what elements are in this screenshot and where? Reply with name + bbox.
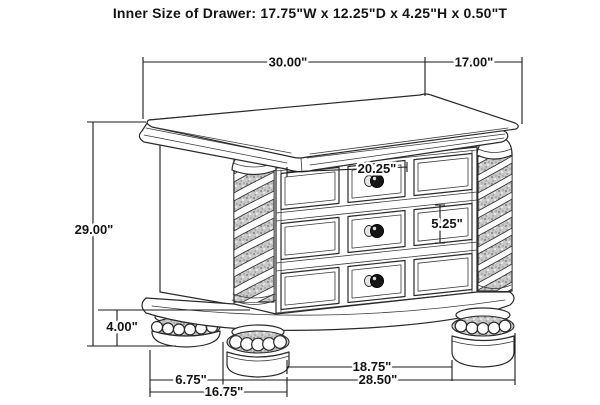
label-left-feet-span: 16.75" — [205, 384, 244, 399]
label-overall-depth: 17.00" — [455, 55, 494, 70]
label-drawer-front-width: 20.25" — [358, 161, 397, 176]
label-foot-width: 6.75" — [175, 372, 206, 387]
right-spiral-column — [477, 137, 512, 308]
drawer-knob-1 — [365, 175, 384, 188]
label-overall-width: 30.00" — [269, 55, 308, 70]
left-side-panel — [160, 142, 234, 305]
diagram-title: Inner Size of Drawer: 17.75"W x 12.25"D … — [113, 5, 508, 21]
drawer-knob-3 — [365, 275, 384, 288]
label-overall-height: 29.00" — [75, 222, 114, 237]
nightstand-drawing: 30.00" 17.00" 29.00" 4.00" 20.25" 5.25" … — [0, 0, 600, 405]
left-spiral-column — [232, 151, 276, 315]
drawer-knob-2 — [365, 225, 384, 238]
label-drawer-front-height: 5.25" — [431, 216, 462, 231]
label-feet-outer-span: 28.50" — [359, 372, 398, 387]
dimension-diagram: 30.00" 17.00" 29.00" 4.00" 20.25" 5.25" … — [0, 0, 600, 405]
label-foot-height: 4.00" — [106, 319, 137, 334]
